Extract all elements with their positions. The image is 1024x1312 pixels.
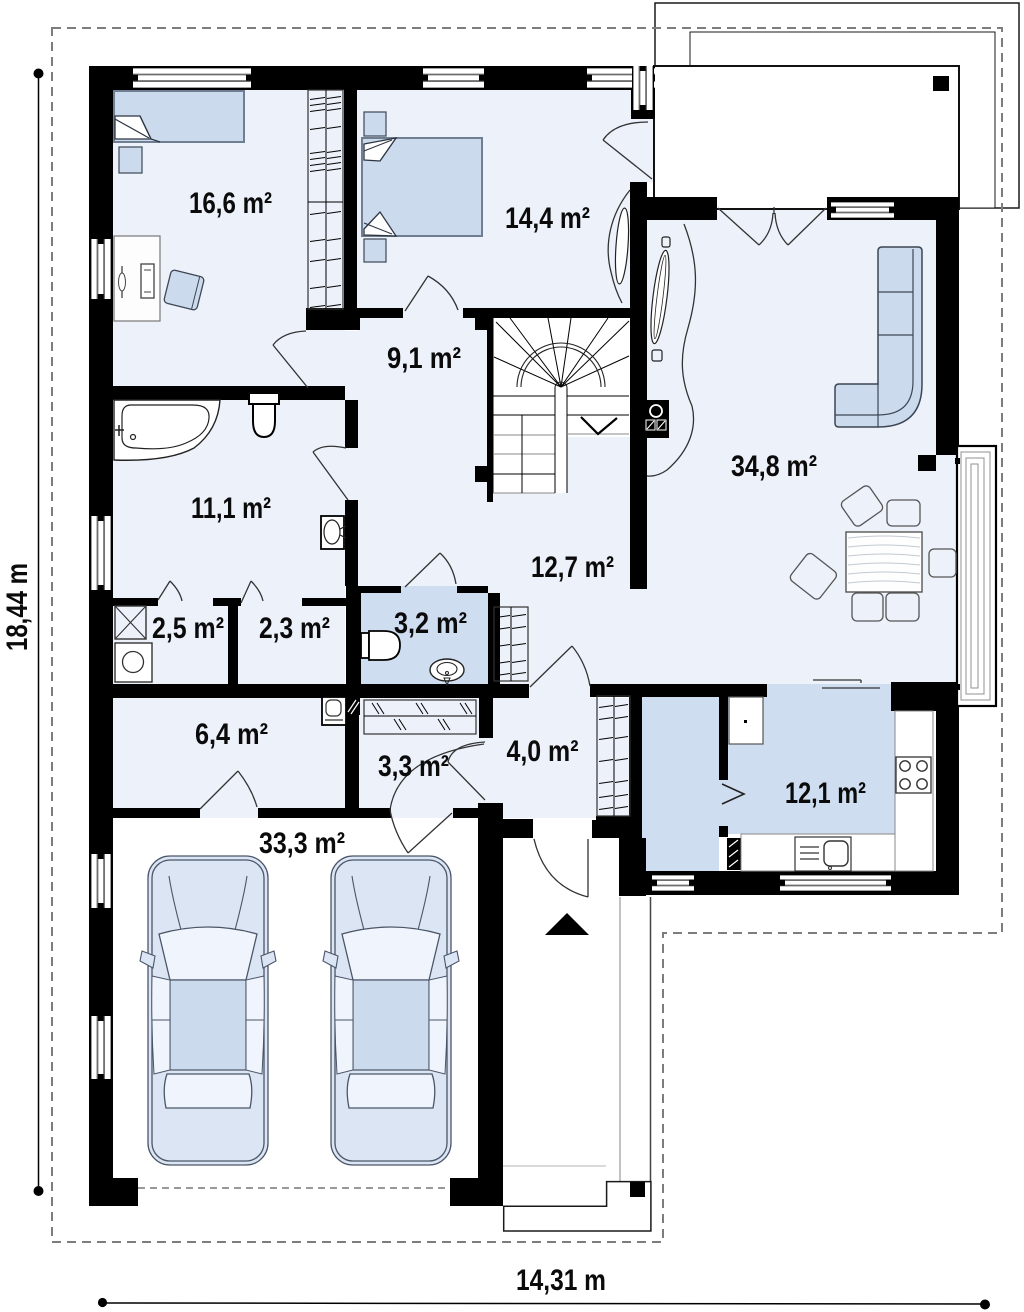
svg-text:34,8 m²: 34,8 m² bbox=[731, 450, 817, 483]
svg-text:33,3 m²: 33,3 m² bbox=[259, 827, 345, 860]
svg-text:14,31 m: 14,31 m bbox=[516, 1264, 606, 1297]
svg-text:2,3 m²: 2,3 m² bbox=[259, 612, 330, 645]
svg-text:9,1 m²: 9,1 m² bbox=[387, 342, 461, 375]
svg-text:12,7 m²: 12,7 m² bbox=[531, 551, 614, 584]
svg-text:14,4 m²: 14,4 m² bbox=[505, 202, 590, 235]
svg-text:11,1 m²: 11,1 m² bbox=[191, 492, 271, 525]
svg-text:16,6 m²: 16,6 m² bbox=[189, 187, 272, 220]
svg-text:3,2 m²: 3,2 m² bbox=[394, 607, 467, 640]
svg-text:3,3 m²: 3,3 m² bbox=[378, 750, 449, 783]
svg-text:18,44 m: 18,44 m bbox=[1, 563, 34, 651]
svg-text:12,1 m²: 12,1 m² bbox=[785, 777, 866, 810]
svg-text:4,0 m²: 4,0 m² bbox=[507, 735, 579, 768]
svg-text:6,4 m²: 6,4 m² bbox=[195, 718, 268, 751]
svg-text:2,5 m²: 2,5 m² bbox=[152, 612, 224, 645]
